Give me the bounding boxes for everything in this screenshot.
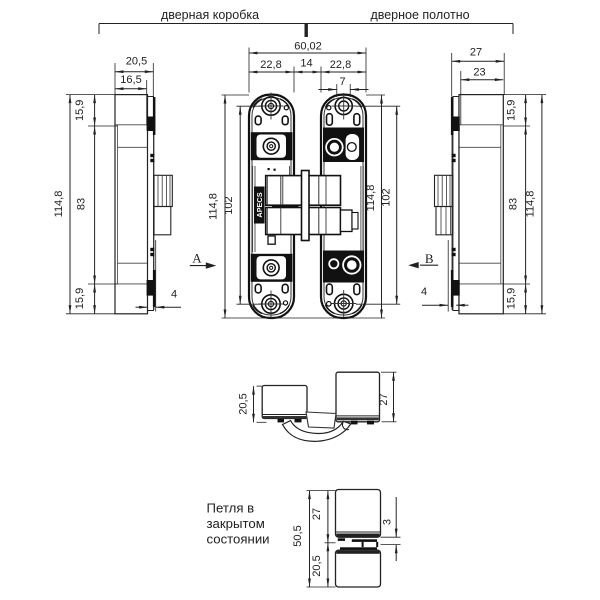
svg-text:102: 102 [381,188,393,206]
svg-text:7: 7 [339,76,345,88]
svg-text:114,8: 114,8 [525,191,537,218]
svg-text:50,5: 50,5 [292,525,304,546]
svg-text:20,5: 20,5 [311,555,323,576]
svg-text:20,5: 20,5 [238,393,250,414]
svg-text:16,5: 16,5 [120,74,141,86]
svg-text:22,8: 22,8 [260,59,281,71]
svg-text:114,8: 114,8 [365,185,377,212]
svg-text:114,8: 114,8 [53,191,65,218]
svg-text:27: 27 [311,508,323,520]
svg-text:APECS: APECS [255,192,264,217]
svg-text:состоянии: состоянии [207,532,270,547]
svg-text:закрытом: закрытом [207,516,265,531]
svg-text:27: 27 [470,47,482,59]
svg-text:83: 83 [508,198,520,210]
svg-text:15,9: 15,9 [506,288,518,309]
svg-text:дверное полотно: дверное полотно [370,8,469,22]
svg-text:4: 4 [171,289,177,301]
svg-text:15,9: 15,9 [74,288,86,309]
svg-text:22,8: 22,8 [330,59,351,71]
svg-text:23: 23 [473,66,485,78]
svg-text:83: 83 [76,198,88,210]
svg-text:Петля в: Петля в [207,501,255,516]
svg-text:27: 27 [378,393,390,405]
svg-text:20,5: 20,5 [126,56,147,68]
svg-text:15,9: 15,9 [74,100,86,121]
svg-text:дверная коробка: дверная коробка [161,8,259,22]
svg-text:102: 102 [223,196,235,214]
svg-text:3: 3 [382,519,394,525]
svg-text:B: B [425,251,434,266]
svg-text:A: A [192,251,202,266]
svg-text:14: 14 [300,58,312,70]
svg-text:60,02: 60,02 [294,41,322,53]
svg-text:4: 4 [421,286,427,298]
svg-text:15,9: 15,9 [506,100,518,121]
svg-text:114,8: 114,8 [208,193,220,220]
